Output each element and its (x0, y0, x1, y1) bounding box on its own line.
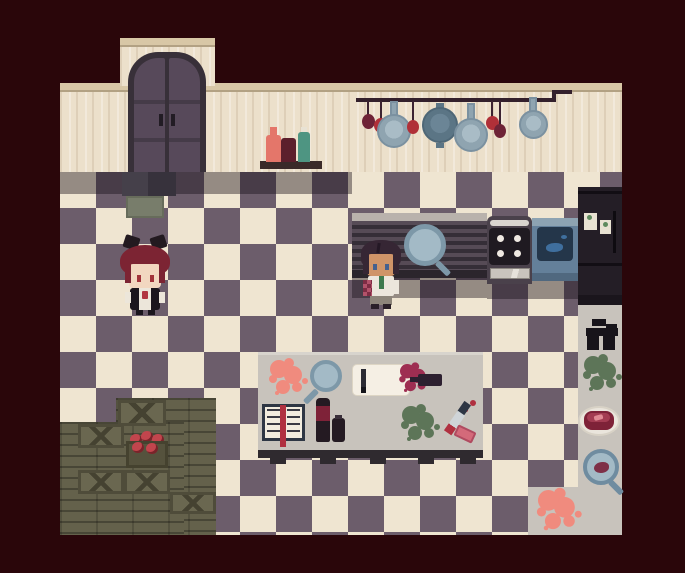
eye (150, 275, 154, 282)
stove[interactable] (487, 216, 532, 284)
grinder-leg (587, 336, 599, 350)
green-splatter (584, 356, 602, 374)
hair-lock (125, 264, 131, 283)
magnifier-lens (404, 224, 446, 266)
crate (124, 470, 170, 494)
fridge[interactable] (578, 187, 622, 305)
fridge-base (578, 295, 622, 305)
shoe (148, 310, 155, 315)
sink-rim (532, 218, 578, 226)
door-panel-line (169, 100, 200, 104)
table-edge (258, 450, 483, 458)
tomato (146, 443, 158, 454)
knife-blade (361, 369, 366, 388)
sink-basin (537, 227, 573, 261)
small-pan (519, 110, 548, 139)
fridge-door-seam (578, 263, 622, 266)
small-jar (332, 418, 345, 442)
pink-splatter (538, 490, 559, 511)
crate (78, 470, 124, 494)
door-handle (171, 114, 175, 126)
stove-back-rail (490, 220, 529, 226)
doormat-tile (122, 172, 148, 196)
tall-bottle (316, 398, 330, 442)
eye (385, 264, 389, 270)
hair-lock (393, 252, 399, 274)
tomato (132, 442, 144, 453)
steak (584, 411, 614, 430)
game-viewport (0, 0, 685, 573)
magnifier-handle (608, 479, 624, 495)
bottle-shelf (258, 124, 324, 170)
crate (78, 424, 124, 448)
face (129, 264, 161, 288)
burner-panel (489, 228, 530, 265)
crate (118, 400, 166, 426)
string (499, 101, 501, 125)
crate (170, 492, 216, 514)
green-splatter (402, 406, 420, 424)
kitchen-table[interactable] (258, 352, 483, 466)
magnifier-lens (583, 449, 619, 485)
tomato-crate[interactable] (124, 434, 170, 470)
string (380, 101, 382, 119)
eye (137, 275, 141, 282)
burner-knob (497, 250, 504, 257)
grinder-bar (586, 328, 618, 336)
alcove-trim (120, 38, 215, 47)
oven-drawer (490, 268, 530, 279)
door-panel-line (169, 138, 200, 142)
door-leaf-left (134, 58, 165, 172)
hair-lock (159, 264, 165, 283)
spilled-bottle (410, 372, 444, 390)
recipe-book[interactable] (262, 404, 305, 441)
magnifier-lens (310, 360, 342, 392)
fridge-note (584, 213, 597, 230)
grinder-leg (603, 336, 615, 350)
dark-haired-character[interactable] (358, 240, 404, 310)
burner-knob (514, 235, 521, 242)
cleaver (453, 424, 476, 443)
door-handle (159, 114, 163, 126)
dark-red-bottle (281, 138, 296, 162)
steak-plate[interactable] (578, 406, 620, 438)
hair-lock (363, 252, 369, 274)
table-foot (418, 458, 434, 464)
book-text-left (267, 409, 280, 435)
book-ribbon (280, 405, 286, 447)
sleeve (391, 280, 399, 294)
rack-rod-joint (552, 90, 556, 102)
pan-lug (436, 143, 444, 148)
book-text-right (287, 409, 300, 435)
table-foot (270, 458, 286, 464)
crate-stack[interactable] (60, 398, 216, 535)
brooch (142, 291, 148, 299)
shoe (371, 304, 379, 309)
fish-in-sink (546, 243, 563, 252)
dark-onion (494, 124, 506, 138)
grinder-cap (592, 319, 606, 326)
stain-magnifier-icon[interactable] (583, 449, 629, 495)
shelf-plank (260, 161, 322, 169)
fridge-handle (613, 211, 616, 253)
string (491, 101, 493, 117)
frying-pan (377, 114, 411, 148)
front-facing-pan (422, 107, 458, 143)
fridge-top-seam (578, 191, 622, 194)
wall-shadow (60, 172, 352, 194)
fridge-note (600, 220, 611, 234)
fish-tail (561, 235, 567, 239)
string (367, 101, 369, 115)
sleeve (125, 292, 131, 303)
tie (379, 276, 384, 289)
jar-cap (335, 415, 342, 419)
counter-top (352, 213, 487, 221)
table-foot (370, 458, 386, 464)
magnet-dot (603, 222, 608, 227)
face (367, 254, 395, 276)
door-panel-line (134, 138, 165, 142)
door[interactable] (128, 52, 206, 172)
magnifier-handle (435, 260, 451, 276)
sleeve (159, 292, 165, 303)
pink-splatter (270, 360, 288, 378)
string (412, 101, 414, 121)
doormat-green-tile (126, 196, 164, 218)
rack-rod (356, 98, 556, 102)
door-leaf-right (169, 58, 200, 172)
knife-handle (361, 387, 366, 393)
shoe (136, 310, 143, 315)
burner-knob (497, 235, 504, 242)
teal-bottle (298, 132, 310, 162)
doormat-tile (148, 172, 176, 196)
magnet-dot (587, 215, 592, 220)
salmon-bottle (266, 135, 281, 162)
dark-onion (362, 114, 375, 129)
table-foot (320, 458, 336, 464)
meat-grinder-icon[interactable] (584, 319, 620, 353)
shoe (383, 304, 391, 309)
eye (373, 264, 377, 270)
table-foot (460, 458, 476, 464)
bottle-body (418, 374, 442, 386)
counter-magnifier-icon[interactable] (402, 222, 458, 278)
pan-rack (352, 88, 578, 158)
sink-cabinet-base (532, 273, 578, 281)
sink[interactable] (532, 218, 578, 281)
bloody-knives (446, 400, 480, 444)
burner-knob (514, 250, 521, 257)
red-onion (407, 120, 419, 134)
door-panel-line (134, 100, 165, 104)
checkered-sleeve (363, 280, 372, 296)
red-haired-character[interactable] (116, 236, 174, 316)
stain-under-lens (594, 462, 609, 473)
frying-pan (454, 118, 488, 152)
